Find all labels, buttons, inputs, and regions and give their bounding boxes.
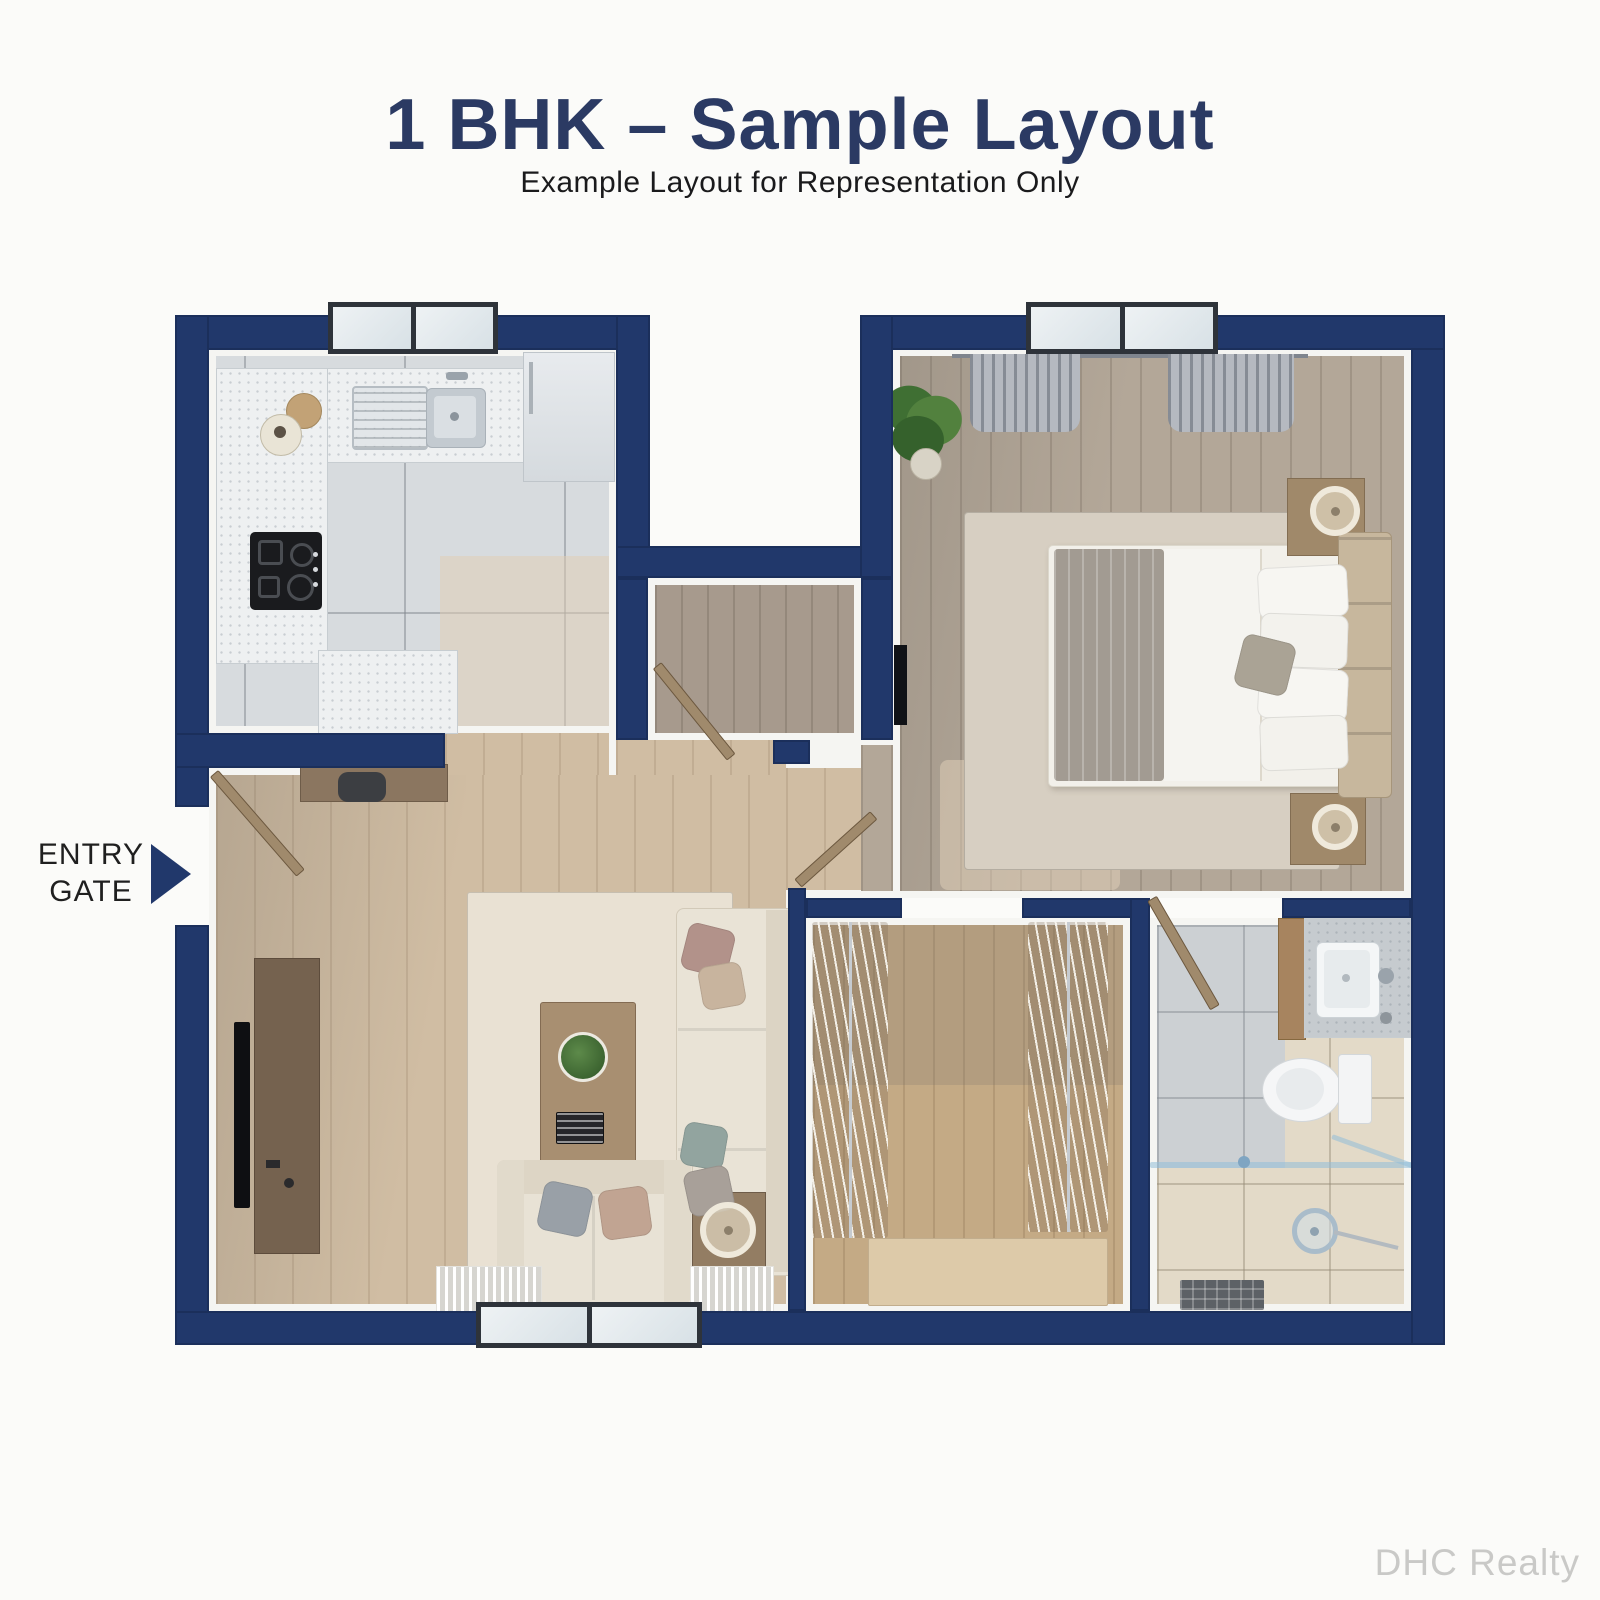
wall	[806, 898, 902, 918]
faucet-icon	[1378, 968, 1394, 984]
tv-cabinet-item	[284, 1178, 294, 1188]
closet-rug	[868, 1238, 1108, 1306]
cooktop-knob	[313, 552, 318, 557]
burner	[258, 540, 283, 565]
burner	[287, 574, 314, 601]
wall	[175, 925, 209, 1345]
bed-pillow	[1257, 564, 1350, 621]
wall	[700, 1311, 1445, 1345]
loveseat-pillow	[535, 1179, 594, 1238]
vanity-cabinet	[1278, 918, 1306, 1040]
wall	[861, 578, 893, 740]
shower-head-center	[1310, 1227, 1319, 1236]
floor-lamp	[700, 1202, 756, 1258]
wall	[1215, 315, 1445, 350]
watermark: DHC Realty	[1375, 1542, 1580, 1584]
toilet-bowl	[1276, 1068, 1324, 1110]
wall	[175, 733, 445, 768]
cooktop-knob	[313, 582, 318, 587]
canister-lid	[274, 426, 286, 438]
bed-throw-blanket	[1054, 549, 1164, 781]
wall	[1282, 898, 1411, 918]
page-title: 1 BHK – Sample Layout	[0, 84, 1600, 166]
sofa-seam	[678, 1028, 766, 1031]
entry-gate-line2: GATE	[34, 873, 148, 910]
bedroom-curtain	[1168, 354, 1294, 432]
desk-chair	[338, 772, 386, 802]
toilet-tank	[1338, 1054, 1372, 1124]
sink-drainboard	[352, 386, 428, 450]
table-plant	[558, 1032, 608, 1082]
tv-cabinet-item	[266, 1160, 280, 1168]
burner	[290, 543, 314, 567]
wall	[1411, 315, 1445, 1345]
loveseat-seam	[592, 1196, 595, 1300]
loveseat-backrest	[497, 1160, 691, 1194]
living-floor	[445, 733, 609, 781]
living-window	[476, 1302, 702, 1348]
wall	[773, 740, 810, 764]
tv-screen	[234, 1022, 250, 1208]
table-book	[556, 1112, 604, 1144]
table-lamp	[1312, 804, 1358, 850]
floor-plan-page: 1 BHK – Sample Layout Example Layout for…	[0, 0, 1600, 1600]
wall	[860, 315, 893, 578]
shower-drain-grate	[1180, 1280, 1264, 1310]
bathroom-gray-tile	[1157, 925, 1285, 1168]
closet-rail	[849, 922, 852, 1238]
fridge	[523, 352, 615, 482]
entry-gate-label: ENTRY GATE	[34, 836, 148, 910]
kitchen-peninsula	[318, 650, 458, 734]
window-curtain	[690, 1266, 774, 1312]
entry-gate-line1: ENTRY	[34, 836, 148, 873]
bed-pillow	[1259, 714, 1349, 771]
kitchen-window	[328, 302, 498, 354]
burner	[258, 576, 280, 598]
closet-rail	[1067, 922, 1070, 1232]
bedroom-window	[1026, 302, 1218, 354]
sofa-pillow	[679, 1121, 730, 1172]
sofa-pillow	[697, 961, 748, 1012]
living-floor	[616, 740, 786, 780]
plant-pot	[910, 448, 942, 480]
tv-cabinet	[254, 958, 320, 1254]
shower-glass-partition	[1150, 1162, 1412, 1168]
wall	[788, 888, 806, 1311]
cooktop-knob	[313, 567, 318, 572]
page-subtitle: Example Layout for Representation Only	[0, 166, 1600, 200]
right-arrow-icon	[151, 844, 191, 904]
faucet-icon	[446, 372, 468, 380]
sink-drain	[1342, 974, 1350, 982]
soap-dispenser	[1380, 1012, 1392, 1024]
fridge-handle	[529, 362, 533, 414]
wall	[616, 546, 893, 578]
glass-door-handle	[1238, 1156, 1250, 1168]
wall	[1130, 898, 1150, 1311]
coffee-table	[540, 1002, 636, 1182]
bedroom-tv	[894, 645, 907, 725]
sink-drain	[450, 412, 459, 421]
foyer-floor	[655, 585, 854, 733]
wall	[175, 1311, 480, 1345]
table-lamp	[1310, 486, 1360, 536]
wall	[616, 315, 650, 578]
bedroom-curtain	[970, 354, 1080, 432]
wall	[616, 578, 648, 740]
loveseat-pillow	[597, 1185, 653, 1241]
